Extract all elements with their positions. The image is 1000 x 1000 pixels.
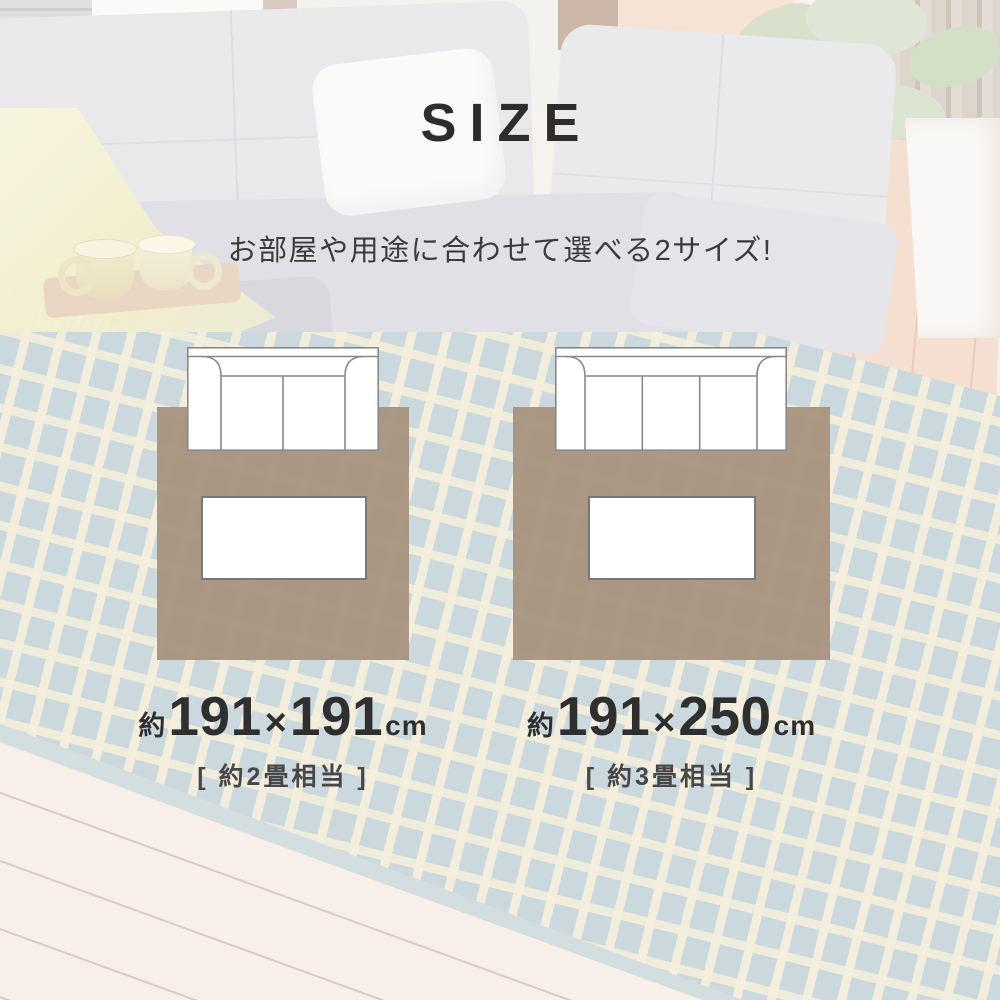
size-infographic: SIZE お部屋や用途に合わせて選べる2サイズ! 約 191 × bbox=[0, 0, 1000, 1000]
sofa-2seat-topview-icon bbox=[188, 348, 378, 450]
size-label-191x250: 約 191 × 250 cm bbox=[513, 684, 830, 748]
size-unit: cm bbox=[774, 710, 816, 742]
page-title: SIZE bbox=[0, 92, 1000, 154]
tatami-equivalent-label: [ 約2畳相当 ] bbox=[157, 757, 409, 793]
tatami-equivalent-label: [ 約3畳相当 ] bbox=[513, 757, 830, 793]
rug-size-diagram-2jo bbox=[157, 347, 409, 660]
times-sign: × bbox=[265, 702, 287, 745]
sofa-3seat-topview-icon bbox=[556, 348, 786, 450]
size-label-191x191: 約 191 × 191 cm bbox=[157, 684, 409, 748]
times-sign: × bbox=[653, 702, 675, 745]
size-width: 191 bbox=[557, 684, 650, 748]
size-option-191x191: 約 191 × 191 cm [ 約2畳相当 ] bbox=[157, 347, 409, 793]
table-topview-icon bbox=[202, 497, 366, 579]
approx-prefix: 約 bbox=[527, 704, 554, 743]
size-unit: cm bbox=[385, 710, 427, 742]
rug-size-diagram-3jo bbox=[513, 347, 830, 660]
size-width: 191 bbox=[168, 684, 261, 748]
table-topview-icon bbox=[589, 497, 755, 579]
approx-prefix: 約 bbox=[138, 704, 165, 743]
size-depth: 250 bbox=[678, 684, 771, 748]
size-option-191x250: 約 191 × 250 cm [ 約3畳相当 ] bbox=[513, 347, 830, 793]
page-subtitle: お部屋や用途に合わせて選べる2サイズ! bbox=[0, 227, 1000, 269]
size-content: SIZE お部屋や用途に合わせて選べる2サイズ! 約 191 × bbox=[0, 0, 1000, 1000]
size-depth: 191 bbox=[290, 684, 383, 748]
